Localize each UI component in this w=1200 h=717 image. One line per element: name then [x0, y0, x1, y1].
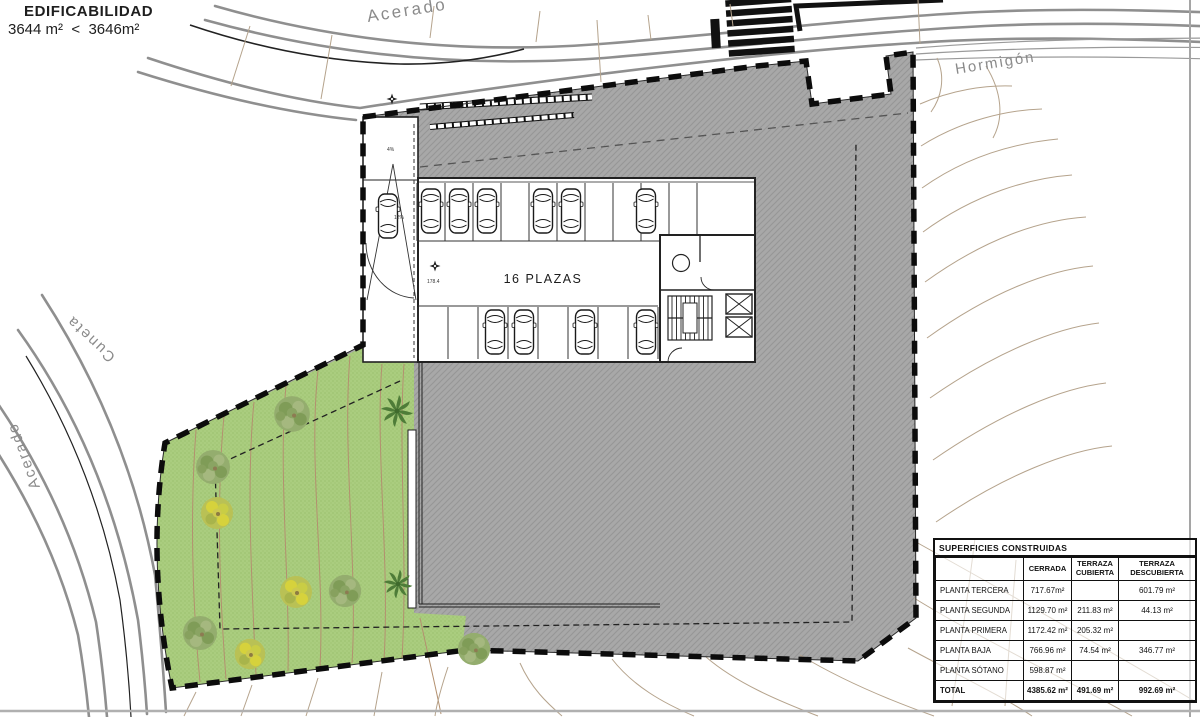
- table-header-terraza-cubierta: TERRAZA CUBIERTA: [1072, 558, 1119, 581]
- parking-count-label: 16 PLAZAS: [504, 272, 583, 286]
- tree-icon: [196, 450, 230, 484]
- row-label: PLANTA SEGUNDA: [936, 601, 1024, 621]
- cell-terraza-descubierta: [1119, 621, 1196, 641]
- road-label-cuneta: Cuneta: [63, 312, 119, 366]
- row-label: TOTAL: [936, 681, 1024, 701]
- car-icon: [559, 189, 583, 233]
- cell-cerrada: 4385.62 m²: [1024, 681, 1072, 701]
- edificabilidad-values: 3644 m² < 3646m²: [8, 21, 153, 38]
- car-icon: [573, 310, 597, 354]
- cell-terraza-cubierta: [1072, 581, 1119, 601]
- tree-icon: [329, 575, 361, 607]
- table-row: PLANTA SEGUNDA 1129.70 m² 211.83 m² 44.1…: [936, 601, 1196, 621]
- table-header-cerrada: CERRADA: [1024, 558, 1072, 581]
- tree-icon: [458, 633, 490, 665]
- row-label: PLANTA SÓTANO: [936, 661, 1024, 681]
- road-label-acerado-left: Acerado: [4, 420, 44, 491]
- car-icon: [512, 310, 536, 354]
- table-row: PLANTA TERCERA 717.67m² 601.79 m²: [936, 581, 1196, 601]
- tree-icon: [274, 396, 310, 432]
- table-header-empty: [936, 558, 1024, 581]
- cell-cerrada: 598.87 m²: [1024, 661, 1072, 681]
- road-label-acerado-top: Acerado: [366, 0, 449, 26]
- edificabilidad-block: EDIFICABILIDAD 3644 m² < 3646m²: [8, 3, 153, 38]
- tree-icon: [183, 616, 217, 650]
- car-icon: [483, 310, 507, 354]
- slope-label-upper: 4%: [387, 147, 395, 153]
- table-row: PLANTA SÓTANO 598.87 m²: [936, 661, 1196, 681]
- planter-strip: [408, 430, 416, 608]
- row-label: PLANTA PRIMERA: [936, 621, 1024, 641]
- arc-road-3: [26, 356, 131, 717]
- road-near-curb-2: [138, 72, 356, 120]
- car-icon: [447, 189, 471, 233]
- table-row: PLANTA PRIMERA 1172.42 m² 205.32 m²: [936, 621, 1196, 641]
- building-core: [660, 235, 755, 362]
- cell-terraza-cubierta: 205.32 m²: [1072, 621, 1119, 641]
- cell-terraza-descubierta: 44.13 m²: [1119, 601, 1196, 621]
- cell-terraza-descubierta: 346.77 m²: [1119, 641, 1196, 661]
- site-plan-canvas: Acerado Hormigón Cuneta Acerado 16 PLAZA…: [0, 0, 1200, 717]
- car-icon: [634, 189, 658, 233]
- cell-terraza-cubierta: 74.54 m²: [1072, 641, 1119, 661]
- cell-terraza-cubierta: 211.83 m²: [1072, 601, 1119, 621]
- cell-cerrada: 717.67m²: [1024, 581, 1072, 601]
- flowering-tree-icon: [201, 497, 233, 529]
- car-icon: [419, 189, 443, 233]
- table-header-row: CERRADA TERRAZA CUBIERTA TERRAZA DESCUBI…: [936, 558, 1196, 581]
- row-label: PLANTA BAJA: [936, 641, 1024, 661]
- cell-terraza-cubierta: 491.69 m²: [1072, 681, 1119, 701]
- crosswalk-icon: [725, 0, 795, 57]
- cell-terraza-descubierta: [1119, 661, 1196, 681]
- slope-label-lower: 12%: [394, 215, 405, 221]
- cell-cerrada: 1129.70 m²: [1024, 601, 1072, 621]
- table-row-total: TOTAL 4385.62 m² 491.69 m² 992.69 m²: [936, 681, 1196, 701]
- table-row: PLANTA BAJA 766.96 m² 74.54 m² 346.77 m²: [936, 641, 1196, 661]
- cell-terraza-descubierta: 992.69 m²: [1119, 681, 1196, 701]
- cell-cerrada: 1172.42 m²: [1024, 621, 1072, 641]
- flowering-tree-icon: [280, 576, 312, 608]
- table-title: SUPERFICIES CONSTRUIDAS: [935, 540, 1195, 557]
- cell-terraza-descubierta: 601.79 m²: [1119, 581, 1196, 601]
- cell-terraza-cubierta: [1072, 661, 1119, 681]
- car-icon: [531, 189, 555, 233]
- arc-road-5: [0, 432, 89, 717]
- ramp-corridor: [363, 117, 418, 362]
- flowering-tree-icon: [235, 639, 265, 669]
- car-icon: [475, 189, 499, 233]
- areas-table: SUPERFICIES CONSTRUIDAS CERRADA TERRAZA …: [933, 538, 1197, 703]
- car-icon: [634, 310, 658, 354]
- road-label-hormigon: Hormigón: [954, 48, 1037, 77]
- toilet-icon: [673, 255, 690, 272]
- edificabilidad-title: EDIFICABILIDAD: [24, 3, 153, 20]
- cell-cerrada: 766.96 m²: [1024, 641, 1072, 661]
- row-label: PLANTA TERCERA: [936, 581, 1024, 601]
- street-post-icon: [710, 19, 721, 48]
- table-header-terraza-descubierta: TERRAZA DESCUBIERTA: [1119, 558, 1196, 581]
- level-point-label: 178.4: [427, 279, 440, 285]
